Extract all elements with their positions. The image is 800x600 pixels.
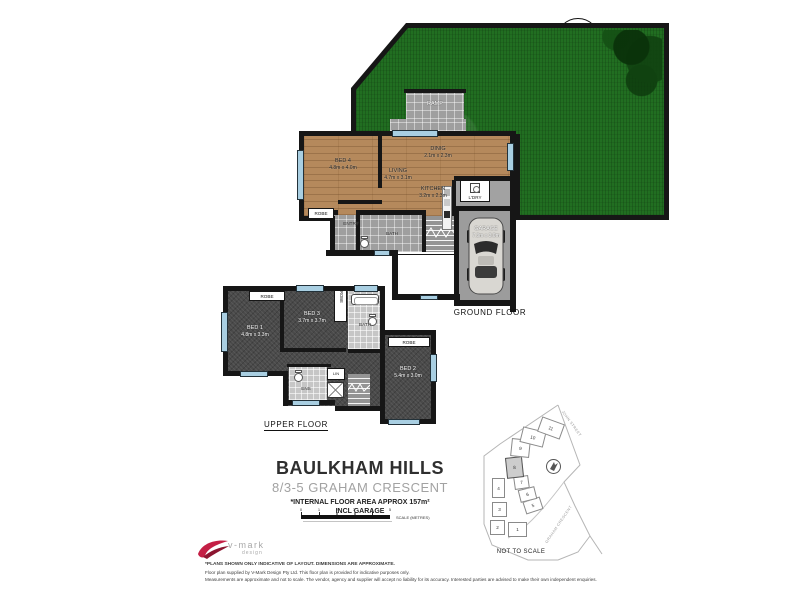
siteplan-north-icon — [546, 459, 561, 474]
bush-icon — [560, 30, 662, 114]
scale-bar-line — [301, 515, 390, 519]
room-label-kitchen: KITCHEN 3.2m x 2.3m — [403, 186, 463, 199]
ramp-label: RAMP — [406, 101, 464, 108]
appliance-icon — [444, 211, 450, 218]
disclaimer-line-2: Floor plan supplied by V-Mark Design Pty… — [205, 570, 410, 575]
bed4-dims: 4.8m x 4.0m — [313, 165, 373, 172]
room-label-bath-ground: BATH — [374, 231, 410, 237]
lot-3: 3 — [492, 502, 507, 517]
toilet-bowl-icon — [294, 373, 303, 382]
lot-2: 2 — [490, 520, 505, 535]
toilet-icon — [294, 370, 303, 382]
address-subtitle: 8/3-5 GRAHAM CRESCENT — [250, 480, 470, 495]
window — [507, 143, 514, 171]
lot-1: 1 — [508, 522, 527, 537]
room-label-laundry: L'DRY — [461, 195, 489, 201]
wall — [348, 349, 384, 353]
robe-label: ROBE — [314, 211, 327, 216]
disclaimer-line-1: *PLANS SHOWN ONLY INDICATIVE OF LAYOUT. … — [205, 562, 395, 567]
stair-break-icon — [348, 382, 370, 394]
entry-label: ENTRY — [343, 221, 359, 226]
shower-icon — [327, 382, 344, 398]
laundry-room: L'DRY — [460, 180, 490, 202]
scale-units-label: SCALE (METRES) — [396, 515, 430, 520]
scale-bar: 0 1 2 3 4 5 SCALE (METRES) — [301, 507, 441, 525]
lot-number: 5 — [531, 503, 535, 509]
window — [296, 285, 324, 292]
room-label-ramp: RAMP — [406, 101, 464, 108]
wall — [454, 176, 515, 181]
upper-floor-text: UPPER FLOOR — [264, 420, 328, 431]
washing-machine-icon — [470, 183, 480, 193]
door-opening — [338, 210, 356, 215]
lot-4: 4 — [492, 478, 505, 498]
room-label-ens: ENS — [292, 386, 320, 392]
logo-text-sub: design — [242, 550, 263, 556]
window — [292, 400, 320, 406]
laundry-label: L'DRY — [468, 195, 481, 200]
siteplan-north-arrow — [547, 460, 560, 473]
upper-floor-label: UPPER FLOOR — [253, 420, 339, 429]
wall — [284, 348, 346, 352]
room-label-bed4: BED 4 4.8m x 4.0m — [313, 158, 373, 171]
robe-bed2: ROBE — [388, 337, 430, 347]
lot-number: 10 — [530, 434, 536, 440]
appliance-icon — [444, 199, 450, 206]
room-label-bed1: BED 1 4.8m x 3.3m — [225, 325, 285, 338]
lot-number: 9 — [519, 445, 522, 450]
washer-door-icon — [473, 186, 480, 193]
window — [392, 130, 438, 137]
bed3-dims: 3.7m x 3.7m — [282, 318, 342, 325]
scale-bar-shadow — [303, 521, 392, 523]
wall — [380, 330, 436, 335]
wall — [287, 364, 331, 367]
room-label-living: LIVING 4.7m x 3.1m — [368, 168, 428, 181]
lot-number: 4 — [497, 486, 500, 491]
lot-number: 3 — [498, 507, 501, 512]
bed2-dims: 5.4m x 3.0m — [379, 373, 437, 380]
wall — [335, 406, 385, 411]
room-label-lin: LIN — [328, 371, 344, 377]
bath-upper-label: BATH — [359, 322, 371, 327]
lot-number: 1 — [516, 527, 519, 532]
window — [388, 419, 420, 425]
bathtub-icon — [351, 294, 379, 305]
robe-ground: ROBE — [308, 208, 334, 219]
room-label-entry: ENTRY — [336, 221, 366, 227]
toilet-icon — [360, 236, 369, 248]
room-label-bath-upper: BATH — [350, 322, 380, 328]
robe-bed1: ROBE — [249, 291, 285, 301]
lin-label: LIN — [333, 371, 339, 376]
wall — [338, 200, 382, 204]
site-plan: 1 2 3 4 5 6 7 8 9 10 11 JOHN STREET GRAH… — [480, 402, 620, 567]
disclaimer-line-3: Measurements are approximate and not to … — [205, 577, 597, 582]
bath-ground-label: BATH — [386, 231, 398, 236]
room-label-garage: GARAGE 7.3m x 3.0m — [462, 226, 510, 239]
wall — [454, 206, 516, 211]
room-label-bed3: BED 3 3.7m x 3.7m — [282, 311, 342, 324]
room-label-dining: DINIG 2.1m x 2.3m — [408, 146, 468, 159]
wall — [380, 287, 385, 352]
wall — [422, 214, 426, 252]
robe-label: ROBE — [402, 340, 415, 345]
room-label-bed2: BED 2 5.4m x 3.0m — [379, 366, 437, 379]
robe-label: ROBE — [260, 294, 273, 299]
lot-number: 7 — [520, 480, 523, 485]
window — [240, 371, 268, 377]
lot-number: 2 — [496, 525, 499, 530]
ens-label: ENS — [301, 386, 310, 391]
lot-8-highlighted: 8 — [505, 456, 524, 479]
window — [297, 150, 304, 200]
vmark-logo: v-mark design — [196, 537, 286, 563]
stairs-upper — [348, 374, 370, 406]
bed1-dims: 4.8m x 3.3m — [225, 332, 285, 339]
not-to-scale-label: NOT TO SCALE — [490, 549, 552, 555]
bathtub-inner — [354, 297, 378, 305]
vmark-logo-icon — [196, 537, 230, 561]
window — [354, 285, 378, 292]
dining-dims: 2.1m x 2.3m — [408, 153, 468, 160]
window — [374, 250, 390, 256]
toilet-bowl-icon — [360, 239, 369, 248]
area-note-line1: *INTERNAL FLOOR AREA APPROX 157m² — [250, 499, 470, 506]
kitchen-dims: 3.2m x 2.3m — [403, 193, 463, 200]
living-dims: 4.7m x 3.1m — [368, 175, 428, 182]
garage-dims: 7.3m x 3.0m — [462, 233, 510, 240]
lot-number: 6 — [526, 492, 530, 497]
robe-label: ROBE — [335, 291, 347, 303]
logo-text-main: v-mark — [228, 540, 265, 550]
lot-number: 8 — [513, 465, 516, 470]
lot-number: 11 — [548, 425, 554, 431]
floorplan-page: { "title": { "suburb": "BAULKHAM HILLS",… — [0, 0, 800, 600]
upper-floor-plan: ROBE ROBE ROBE BED 1 4.8m x 3.3m BED 3 3… — [0, 280, 500, 440]
suburb-title: BAULKHAM HILLS — [250, 458, 470, 479]
